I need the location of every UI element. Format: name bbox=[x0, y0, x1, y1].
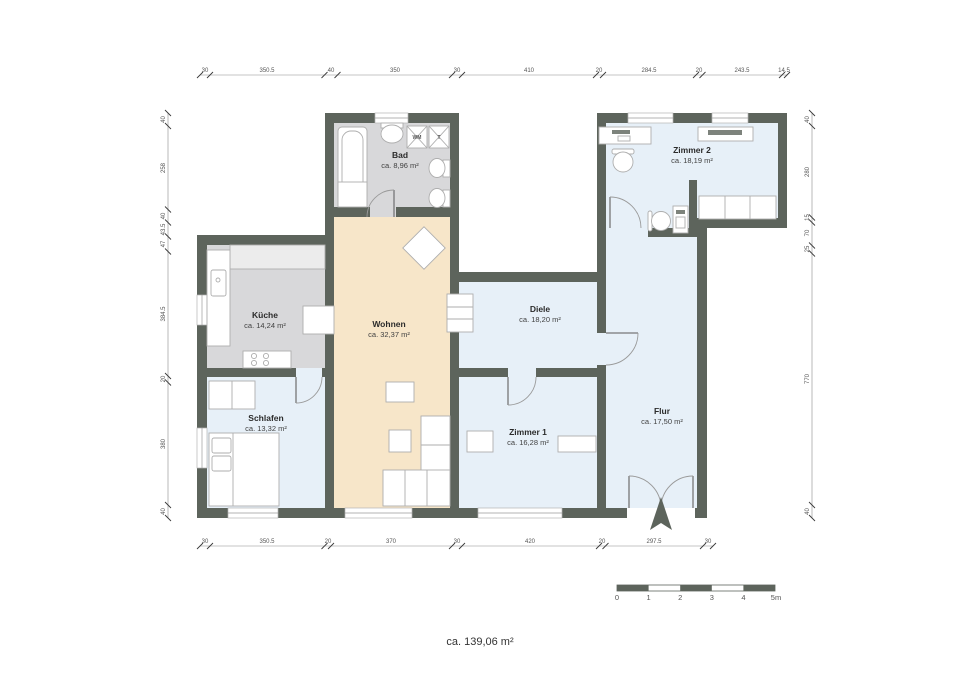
dimension-label: 43.5 bbox=[161, 223, 167, 235]
floor-plan-drawing: WM T bbox=[0, 0, 960, 679]
dimension-label: 30 bbox=[454, 68, 461, 74]
floor-plan-page: WM T bbox=[0, 0, 960, 679]
zimmer1-sideboard bbox=[558, 436, 596, 452]
dimension-label: 47 bbox=[161, 240, 167, 247]
bad-bottom-wall-left bbox=[325, 207, 370, 217]
kueche-pass-counter bbox=[303, 306, 334, 334]
flur-right-wall bbox=[697, 218, 707, 518]
dimension-label: 40 bbox=[328, 68, 335, 74]
kueche-schlafen-wall-left bbox=[197, 368, 296, 377]
dimension-label: 420 bbox=[525, 539, 536, 545]
bad-door-opening bbox=[370, 207, 396, 217]
diele-top-wall bbox=[450, 272, 606, 282]
dimension-label: 770 bbox=[805, 373, 811, 384]
dimension-label: 380 bbox=[161, 438, 167, 449]
room-area: ca. 14,24 m² bbox=[244, 321, 286, 330]
room-name: Diele bbox=[530, 304, 551, 314]
dimension-label: 30 bbox=[454, 539, 461, 545]
dimension-label: 384.5 bbox=[161, 306, 167, 322]
room-area: ca. 18,20 m² bbox=[519, 315, 561, 324]
diele-zimmer1-wall-left bbox=[450, 368, 508, 377]
dimension-label: 284.5 bbox=[641, 68, 657, 74]
scale-bar-segment bbox=[743, 585, 775, 591]
dimension-label: 410 bbox=[524, 68, 535, 74]
dimension-label: 15 bbox=[805, 214, 811, 221]
desk-chair bbox=[612, 149, 634, 172]
wing-divider-wall bbox=[689, 180, 697, 228]
kitchen-counter-left bbox=[207, 250, 230, 346]
dimension-label: 20 bbox=[596, 68, 603, 74]
dimension-label: 350.5 bbox=[259, 539, 275, 545]
coffee-table bbox=[389, 430, 411, 452]
zimmer2-top-wall bbox=[597, 113, 787, 123]
kueche-schlafen-wall-right bbox=[322, 368, 334, 377]
bath-cabinet bbox=[338, 182, 367, 207]
room-area: ca. 17,50 m² bbox=[641, 417, 683, 426]
dryer: T bbox=[429, 126, 449, 148]
room-name: Zimmer 2 bbox=[673, 145, 711, 155]
top-dimension-line: 30 350.5 40 350 30 410 20 284.5 20 243.5… bbox=[197, 68, 790, 78]
dimension-label: 20 bbox=[161, 375, 167, 382]
dimension-label: 25 bbox=[805, 245, 811, 252]
dimension-label: 40 bbox=[161, 508, 167, 515]
room-area: ca. 13,32 m² bbox=[245, 424, 287, 433]
stove bbox=[243, 351, 291, 368]
kitchen-sink bbox=[211, 270, 226, 296]
room-name: Zimmer 1 bbox=[509, 427, 547, 437]
total-area-label: ca. 139,06 m² bbox=[446, 636, 514, 648]
room-name: Wohnen bbox=[372, 319, 405, 329]
dimension-label: 280 bbox=[805, 166, 811, 177]
scale-label: 4 bbox=[741, 593, 745, 602]
dimension-label: 350.5 bbox=[259, 68, 275, 74]
room-name: Schlafen bbox=[248, 413, 283, 423]
scale-label: 5m bbox=[771, 593, 781, 602]
flur-floor bbox=[606, 237, 697, 508]
diele-zimmer1-wall-right bbox=[536, 368, 606, 377]
washing-machine: WM bbox=[407, 126, 427, 148]
zimmer1-dresser bbox=[467, 431, 493, 452]
scale-bar-segment bbox=[617, 585, 649, 591]
dimension-label: 40 bbox=[161, 116, 167, 123]
bottom-dimension-line: 30 350.5 20 370 30 420 20 297.5 30 bbox=[197, 539, 716, 549]
bad-bottom-wall-right bbox=[396, 207, 459, 217]
room-area: ca. 32,37 m² bbox=[368, 330, 410, 339]
kitchen-counter-top bbox=[230, 245, 325, 269]
tv-board bbox=[386, 382, 414, 402]
dimension-label: 30 bbox=[202, 539, 209, 545]
daybed bbox=[699, 196, 776, 219]
room-name: Bad bbox=[392, 150, 408, 160]
small-desk bbox=[673, 206, 688, 233]
zimmer2-right-wall bbox=[778, 113, 787, 228]
dimension-label: 243.5 bbox=[734, 68, 750, 74]
left-dimension-line: 40 258 40 43.5 47 384.5 20 380 40 bbox=[161, 110, 171, 521]
flur-left-wall bbox=[597, 123, 606, 518]
zimmer1-door-opening bbox=[508, 368, 536, 377]
dimension-label: 350 bbox=[390, 68, 401, 74]
room-area: ca. 18,19 m² bbox=[671, 156, 713, 165]
dimension-label: 70 bbox=[805, 229, 811, 236]
diele-flur-door-opening bbox=[597, 333, 606, 365]
scale-bar-segment bbox=[680, 585, 712, 591]
wohnen-diele-passage bbox=[447, 294, 473, 332]
dimension-label: 370 bbox=[386, 539, 397, 545]
zimmer2-door-opening bbox=[606, 228, 648, 237]
zimmer2-bottom-wall bbox=[648, 228, 697, 237]
scale-label: 3 bbox=[710, 593, 714, 602]
scale-label: 2 bbox=[678, 593, 682, 602]
dryer-label: T bbox=[437, 135, 440, 141]
double-bed bbox=[209, 433, 279, 506]
dimension-label: 30 bbox=[705, 539, 712, 545]
room-name: Flur bbox=[654, 406, 671, 416]
scale-label: 0 bbox=[615, 593, 619, 602]
dimension-label: 20 bbox=[325, 539, 332, 545]
room-name: Küche bbox=[252, 310, 278, 320]
scale-label: 1 bbox=[647, 593, 651, 602]
dimension-label: 40 bbox=[805, 508, 811, 515]
dimension-label: 14.5 bbox=[778, 68, 790, 74]
small-desk-chair bbox=[648, 211, 671, 231]
wardrobe bbox=[209, 381, 255, 409]
right-dimension-line: 40 280 15 70 25 770 40 bbox=[805, 110, 815, 521]
toilet bbox=[429, 159, 450, 178]
kueche-top-wall bbox=[197, 235, 334, 245]
bath-sink bbox=[381, 123, 403, 143]
dimension-label: 20 bbox=[599, 539, 606, 545]
schlafen-door-opening bbox=[296, 368, 322, 377]
scale-bar: 0 1 2 3 4 5m bbox=[615, 585, 781, 602]
room-area: ca. 8,96 m² bbox=[381, 161, 419, 170]
dimension-label: 20 bbox=[696, 68, 703, 74]
desk bbox=[599, 127, 651, 144]
dimension-label: 40 bbox=[161, 212, 167, 219]
dimension-label: 40 bbox=[805, 116, 811, 123]
shelf bbox=[698, 127, 753, 141]
diele-floor bbox=[459, 282, 597, 368]
dimension-label: 258 bbox=[161, 162, 167, 173]
room-area: ca. 16,28 m² bbox=[507, 438, 549, 447]
dimension-label: 30 bbox=[202, 68, 209, 74]
dimension-label: 297.5 bbox=[646, 539, 662, 545]
bidet bbox=[429, 189, 450, 208]
washer-label: WM bbox=[413, 135, 422, 141]
